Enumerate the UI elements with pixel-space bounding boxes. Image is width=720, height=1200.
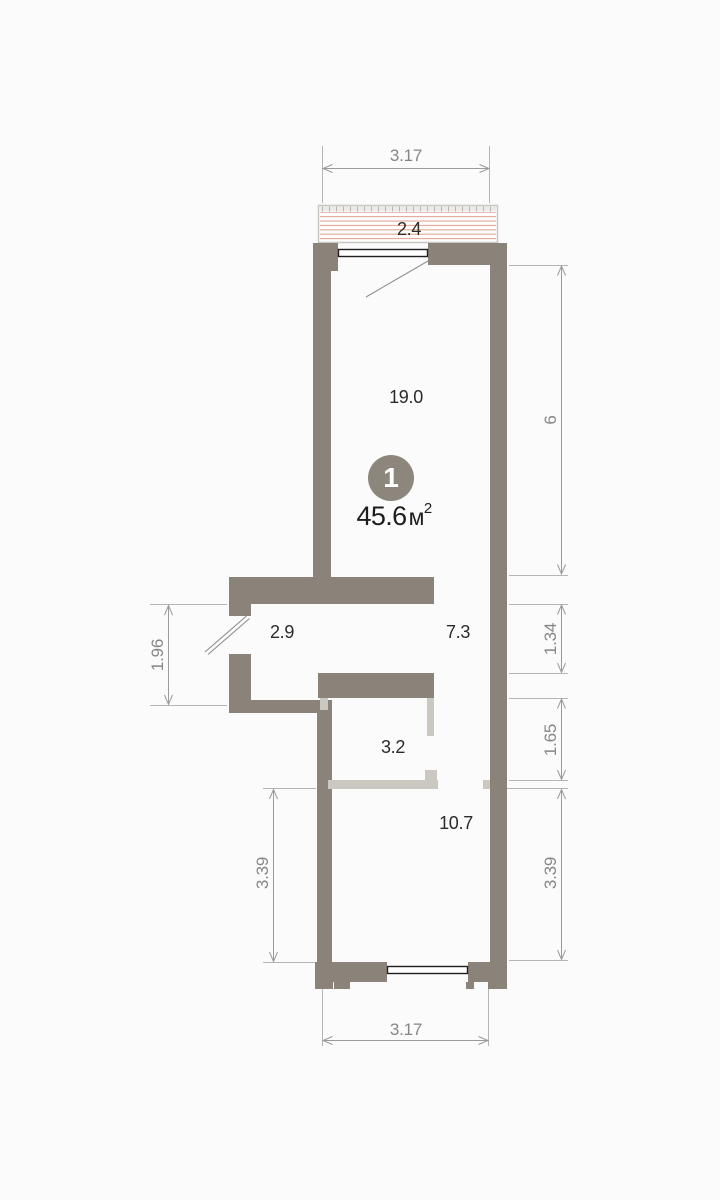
wall-segment (466, 982, 474, 989)
wall-segment (315, 962, 333, 989)
windows-layer (339, 250, 468, 974)
dim-label-right-room2: 3.39 (542, 838, 560, 908)
room-label-bathroom: 3.2 (333, 738, 453, 756)
wall-segment (490, 243, 507, 963)
dim-label-top-width: 3.17 (346, 147, 466, 165)
dim-label-right-living: 6 (542, 385, 560, 455)
window-top (339, 250, 428, 257)
balcony-door-leaf (366, 261, 428, 297)
area-exponent: 2 (424, 500, 432, 517)
partition-segment (320, 698, 328, 710)
balcony-area-label: 2.4 (349, 220, 469, 238)
floor-plan: 3.17 2.4 19.0 1 45.6м2 2.9 7.3 3.2 10.7 … (0, 0, 720, 1200)
wall-segment (334, 982, 350, 989)
unit-area-label: 45.6м2 (314, 501, 474, 531)
room-label-room2: 10.7 (396, 814, 516, 832)
dim-label-bottom-width: 3.17 (346, 1021, 466, 1039)
dim-label-right-hall: 1.34 (542, 604, 560, 674)
wall-segment (229, 700, 318, 713)
room-label-hall: 2.9 (222, 623, 342, 641)
area-unit: м (409, 504, 424, 530)
wall-segment (229, 604, 251, 616)
partition-segment (328, 780, 438, 789)
dim-label-right-bath: 1.65 (542, 705, 560, 775)
partition-segment (483, 780, 490, 789)
area-value: 45.6 (356, 501, 406, 531)
floor-plan-drawing (0, 0, 720, 1200)
room-label-corridor: 7.3 (398, 623, 518, 641)
unit-number-badge: 1 (368, 455, 414, 501)
window-bottom (388, 967, 468, 974)
dim-label-left-hall: 1.96 (149, 620, 167, 690)
room-label-living: 19.0 (346, 388, 466, 406)
balcony-railing-ticks (320, 207, 496, 212)
partition-segment (425, 770, 437, 780)
partition-segment (427, 698, 434, 736)
dim-label-left-room2: 3.39 (254, 838, 272, 908)
wall-segment (229, 577, 434, 604)
wall-segment (488, 962, 507, 989)
wall-segment (317, 700, 332, 963)
wall-segment (318, 673, 434, 698)
